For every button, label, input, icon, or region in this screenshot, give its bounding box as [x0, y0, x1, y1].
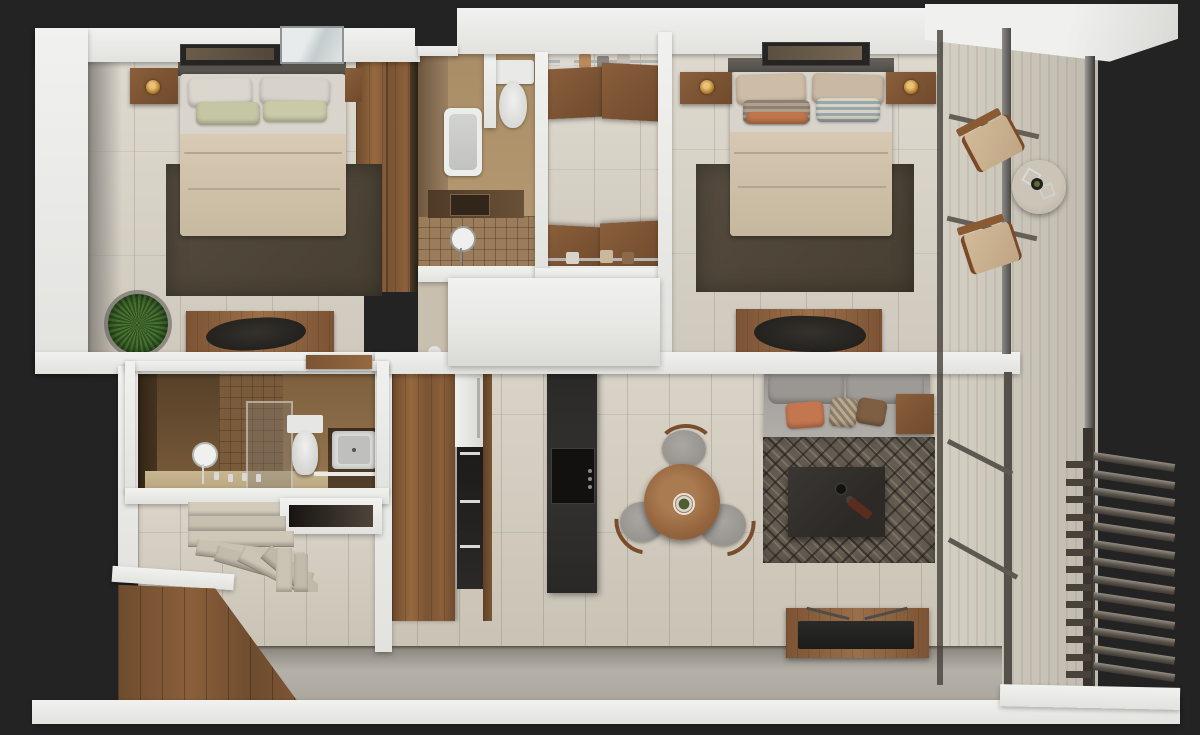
bedroom-1-door-leaf [306, 355, 372, 369]
appliance-oven-column [457, 447, 483, 589]
louver-slat [1093, 610, 1175, 630]
cooktop-burner [554, 452, 569, 467]
wall-art-canvas-1 [186, 48, 274, 60]
sofa-pillow-patterned [829, 397, 859, 429]
toilet-2-bowl [292, 431, 318, 475]
outer-wall-left [35, 28, 88, 372]
louver-slat [1093, 505, 1175, 525]
louver-stub [1066, 619, 1091, 626]
vanity-2-drain [352, 448, 356, 452]
nightstand-1b [345, 68, 362, 102]
glass-wall-line [937, 30, 943, 685]
hanging-clothes [579, 54, 591, 68]
table-lamp-2-right [904, 80, 918, 94]
bed-1-duvet [180, 134, 346, 236]
wall-art-canvas-2 [768, 46, 862, 60]
louver-stub [1066, 549, 1091, 556]
window-skylight [280, 26, 344, 64]
louver-slat [1093, 452, 1175, 472]
void-block [448, 278, 660, 366]
table-lamp-1 [146, 80, 160, 94]
louver-stub [1066, 479, 1091, 486]
appliance-handle [460, 500, 480, 503]
bed-2-accent-pillow-orange [746, 112, 808, 124]
vanity-1-sink [450, 194, 490, 216]
closet-cabinet-top-left [548, 67, 602, 120]
balcony-table-plant [1034, 181, 1040, 187]
bedroom-2-left-wall [658, 32, 672, 354]
side-table [896, 394, 934, 434]
bed-1-duvet-fold [184, 152, 342, 154]
faucet-knob [228, 474, 233, 482]
hanging-clothes [560, 55, 574, 68]
hanging-clothes [600, 250, 613, 263]
louver-slat [1093, 522, 1175, 542]
louver-stub [1066, 496, 1091, 503]
towel-shelf [314, 472, 378, 476]
cooktop-burner [554, 479, 569, 494]
louver-slat [1093, 470, 1175, 490]
bathroom-1-partition [484, 52, 496, 128]
louver-stub [1066, 636, 1091, 643]
bed-1-duvet-fold [188, 188, 340, 190]
roof-notch [415, 0, 457, 46]
louver-stub [1066, 461, 1091, 468]
louver-slat [1093, 557, 1175, 577]
cooktop-burner [573, 479, 588, 494]
sofa-pillow-orange [785, 401, 825, 430]
appliance-handle [460, 452, 480, 455]
staircase [188, 500, 318, 592]
louver-slat [1093, 592, 1175, 612]
appliance-fridge-handle [477, 378, 480, 438]
stair-step [294, 554, 308, 592]
louver-slat [1093, 487, 1175, 507]
shower-2-glass-panel [246, 401, 293, 491]
kitchen-cabinet-edge [483, 369, 492, 621]
louver-stub [1066, 584, 1091, 591]
mirror-2-stand [202, 464, 204, 484]
cooktop-knob [588, 477, 592, 481]
bathtub-basin [449, 114, 477, 170]
stair-step [188, 502, 280, 517]
closet-cabinet-top-right [602, 63, 658, 122]
kitchen-counter [392, 369, 455, 621]
louver-stub [1066, 654, 1091, 661]
television [798, 621, 914, 649]
louver-stub [1066, 671, 1091, 678]
closet-left-wall [535, 52, 548, 270]
coffee-table-decor-vase [836, 484, 846, 494]
floor-plan-render [0, 0, 1200, 735]
faucet-knob [256, 474, 261, 482]
wardrobe-divider [386, 28, 388, 292]
bed-1-accent-pillow-right [263, 101, 327, 122]
toilet-1-tank [492, 60, 534, 84]
louver-slat [1093, 575, 1175, 595]
table-lamp-2-left [700, 80, 714, 94]
louver-slat [1093, 540, 1175, 560]
glass-mullion-bottom [1004, 372, 1012, 690]
louver-stub [1066, 531, 1091, 538]
stair-step [276, 548, 292, 592]
hanging-clothes [622, 252, 634, 264]
bed-2-duvet-fold [734, 152, 888, 154]
bed-1-accent-pillow-left [196, 102, 260, 125]
louver-stub [1066, 601, 1091, 608]
cooktop-knob [588, 469, 592, 473]
toilet-1-bowl [499, 82, 527, 128]
bed-2-accent-pillow-right [816, 98, 880, 122]
mirror-1 [450, 226, 476, 252]
bed-2-duvet [730, 132, 892, 236]
louver-slat [1093, 627, 1175, 647]
sofa-pillow-brown [855, 397, 888, 428]
cooktop-knob [588, 485, 592, 489]
hanging-clothes [566, 252, 579, 264]
bathroom-2-frame-left [125, 361, 135, 493]
potted-plant [108, 294, 168, 354]
bed-2-duvet-fold [738, 186, 886, 188]
mirror-1-stem [460, 248, 462, 262]
glass-mullion-top [1002, 28, 1011, 354]
louver-stub [1066, 566, 1091, 573]
faucet-knob [242, 473, 247, 481]
louver-slat [1093, 662, 1175, 682]
shower-1-floor [418, 216, 538, 272]
louver-slat [1093, 645, 1175, 665]
louver-stub [1066, 514, 1091, 521]
faucet-knob [214, 472, 219, 480]
table-centerpiece [673, 493, 695, 515]
floor-slab-right [1000, 684, 1180, 710]
appliance-handle [460, 545, 480, 548]
stair-step [188, 516, 286, 532]
coffee-table [788, 467, 885, 537]
bathroom-2-frame-right [377, 361, 389, 493]
mirror-2 [192, 442, 218, 468]
cooktop-burner [573, 452, 588, 467]
